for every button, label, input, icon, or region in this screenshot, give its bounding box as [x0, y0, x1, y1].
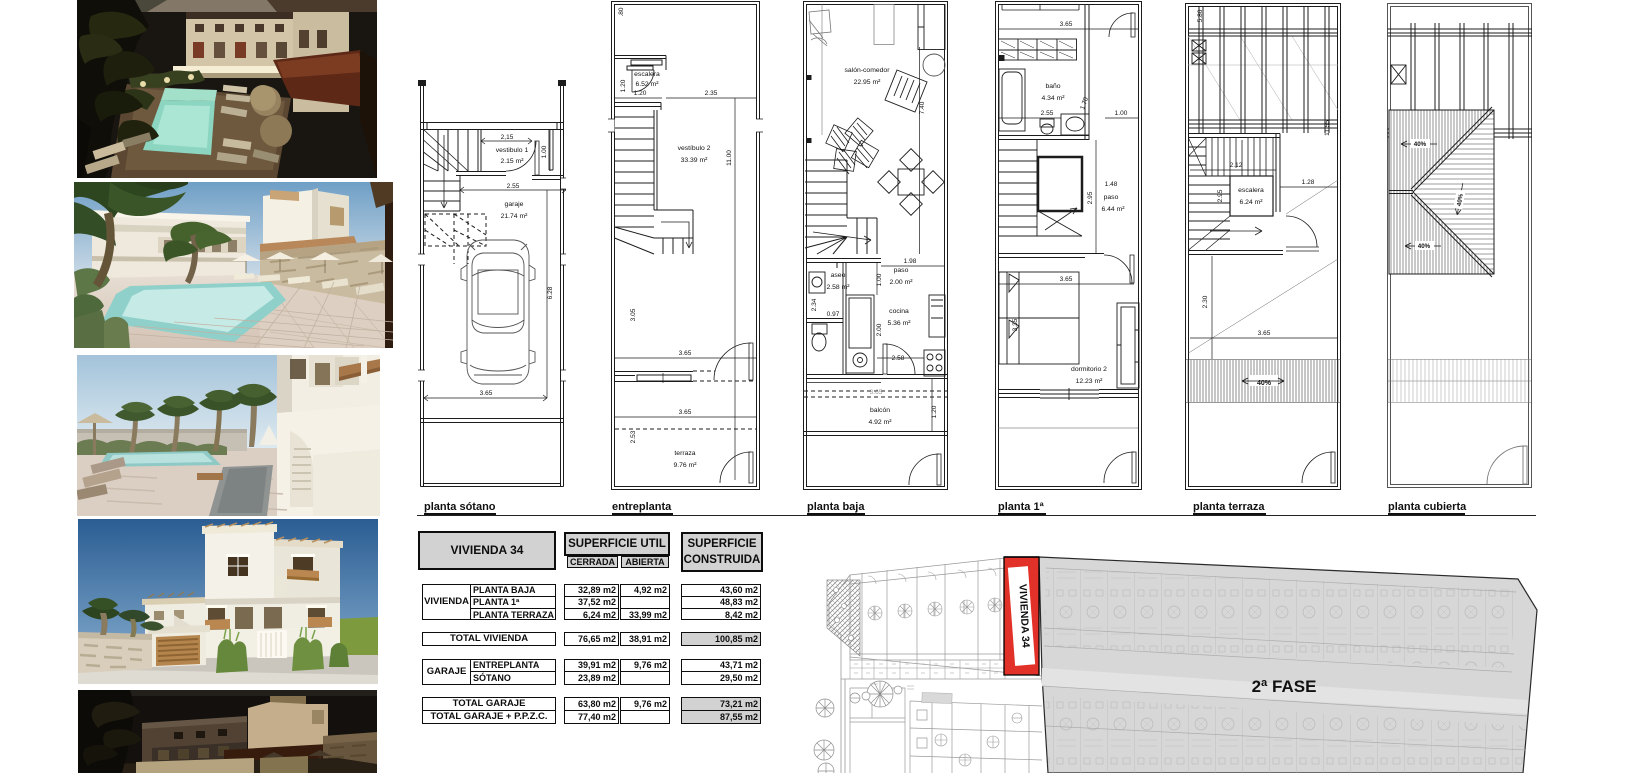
svg-text:1.00: 1.00 — [876, 273, 883, 286]
svg-text:2.00: 2.00 — [876, 323, 883, 336]
svg-text:1.00: 1.00 — [1115, 110, 1128, 117]
svg-text:1.00: 1.00 — [541, 145, 548, 158]
svg-text:paso: paso — [1104, 194, 1119, 201]
svg-text:3.35: 3.35 — [1012, 318, 1019, 331]
svg-text:3.05: 3.05 — [630, 308, 637, 321]
svg-text:9.76 m²: 9.76 m² — [673, 462, 697, 469]
svg-text:paso: paso — [894, 267, 909, 274]
svg-text:4.92 m²: 4.92 m² — [868, 419, 892, 426]
svg-text:2,15: 2,15 — [501, 134, 514, 141]
svg-text:2.53: 2.53 — [630, 430, 637, 443]
svg-text:2.58: 2.58 — [892, 355, 905, 362]
svg-text:0.97: 0.97 — [827, 311, 840, 318]
svg-text:baño: baño — [1045, 83, 1060, 90]
svg-text:escalera: escalera — [634, 71, 660, 78]
svg-text:3.65: 3.65 — [679, 409, 692, 416]
svg-text:terraza: terraza — [674, 450, 695, 457]
svg-text:2.15 m²: 2.15 m² — [500, 158, 524, 165]
svg-text:11.00: 11.00 — [726, 150, 733, 166]
svg-text:1.28: 1.28 — [1302, 179, 1315, 186]
svg-text:21.74 m²: 21.74 m² — [501, 213, 529, 220]
svg-text:2ª FASE: 2ª FASE — [1252, 677, 1317, 696]
svg-text:2.34: 2.34 — [811, 298, 818, 311]
svg-text:7.40: 7.40 — [919, 101, 926, 114]
svg-text:escalera: escalera — [1238, 187, 1264, 194]
svg-text:33.39 m²: 33.39 m² — [681, 157, 709, 164]
svg-text:3.65: 3.65 — [1060, 21, 1073, 28]
svg-text:2.30: 2.30 — [1202, 295, 1209, 308]
svg-text:6.24 m²: 6.24 m² — [1239, 199, 1263, 206]
svg-text:2.58 m²: 2.58 m² — [826, 284, 850, 291]
svg-text:6.28: 6.28 — [547, 286, 554, 299]
svg-text:1.98: 1.98 — [904, 258, 917, 265]
svg-text:6.52 m²: 6.52 m² — [635, 81, 659, 88]
svg-text:balcón: balcón — [870, 407, 890, 414]
svg-text:2.95: 2.95 — [1087, 191, 1094, 204]
svg-text:12.23 m²: 12.23 m² — [1076, 378, 1104, 385]
svg-text:cocina: cocina — [889, 308, 909, 315]
svg-text:6.44 m²: 6.44 m² — [1101, 206, 1125, 213]
svg-text:40%: 40% — [1257, 380, 1272, 387]
svg-text:1.48: 1.48 — [1105, 181, 1118, 188]
svg-text:40%: 40% — [1418, 243, 1431, 250]
svg-text:vestíbulo 2: vestíbulo 2 — [678, 145, 711, 152]
svg-text:2.35: 2.35 — [705, 90, 718, 97]
svg-text:4.34 m²: 4.34 m² — [1041, 95, 1065, 102]
svg-text:.80: .80 — [618, 7, 625, 16]
svg-text:5.80: 5.80 — [1197, 9, 1204, 22]
svg-text:dormitorio 2: dormitorio 2 — [1071, 366, 1107, 373]
svg-text:3.65: 3.65 — [870, 389, 883, 396]
svg-text:3.65: 3.65 — [679, 350, 692, 357]
svg-text:garaje: garaje — [505, 201, 524, 208]
svg-text:2.12: 2.12 — [1230, 162, 1243, 169]
svg-text:40%: 40% — [1414, 141, 1427, 148]
svg-text:2.55: 2.55 — [507, 183, 520, 190]
svg-text:aseo: aseo — [831, 272, 846, 279]
svg-text:2.55: 2.55 — [1041, 110, 1054, 117]
svg-text:1.20: 1.20 — [620, 79, 627, 92]
svg-text:2.95: 2.95 — [1217, 189, 1224, 202]
svg-text:11.55: 11.55 — [1324, 120, 1331, 136]
svg-text:3.65: 3.65 — [1060, 276, 1073, 283]
svg-text:22.95 m²: 22.95 m² — [854, 79, 882, 86]
svg-text:3.65: 3.65 — [480, 390, 493, 397]
svg-text:vestibulo 1: vestibulo 1 — [496, 147, 529, 154]
svg-text:2.00 m²: 2.00 m² — [889, 279, 913, 286]
svg-text:3.65: 3.65 — [1258, 330, 1271, 337]
svg-text:1.20: 1.20 — [634, 90, 647, 97]
svg-text:1.20: 1.20 — [931, 405, 938, 418]
svg-text:5.36 m²: 5.36 m² — [887, 320, 911, 327]
svg-text:salón-comedor: salón-comedor — [845, 67, 891, 74]
